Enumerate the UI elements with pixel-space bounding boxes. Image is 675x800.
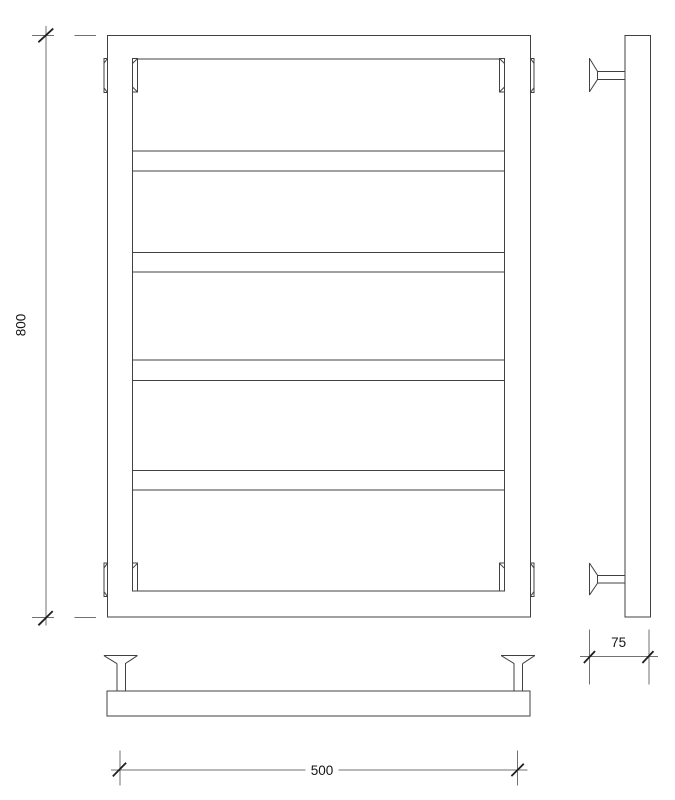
svg-text:800: 800 xyxy=(14,314,29,337)
svg-text:500: 500 xyxy=(311,763,334,778)
svg-text:75: 75 xyxy=(611,635,626,650)
